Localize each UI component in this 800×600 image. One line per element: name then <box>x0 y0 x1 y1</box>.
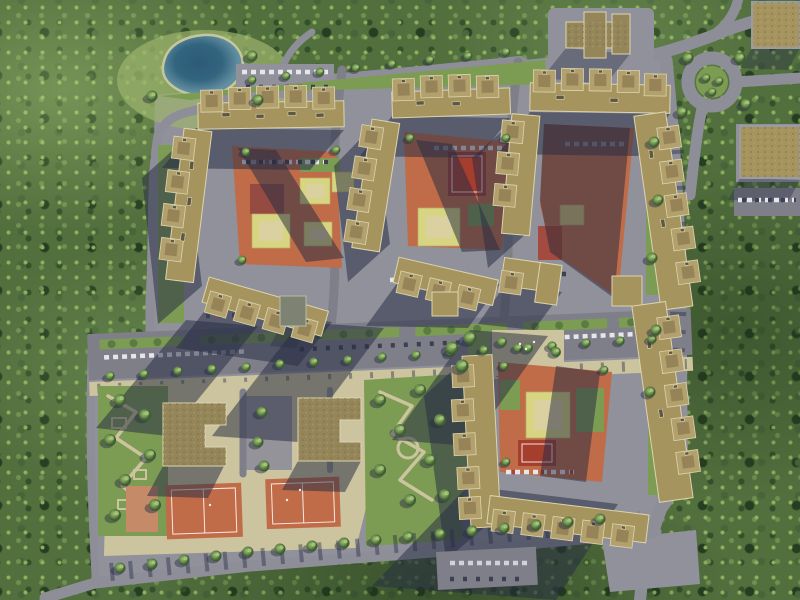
utility-building <box>280 296 306 326</box>
lake <box>163 35 243 96</box>
estate-render <box>0 0 800 600</box>
commercial-building-1-roof <box>752 2 800 48</box>
commercial-building-2-roof <box>740 126 800 178</box>
aerial-scene <box>0 0 800 600</box>
south-parking-lot <box>436 547 538 590</box>
